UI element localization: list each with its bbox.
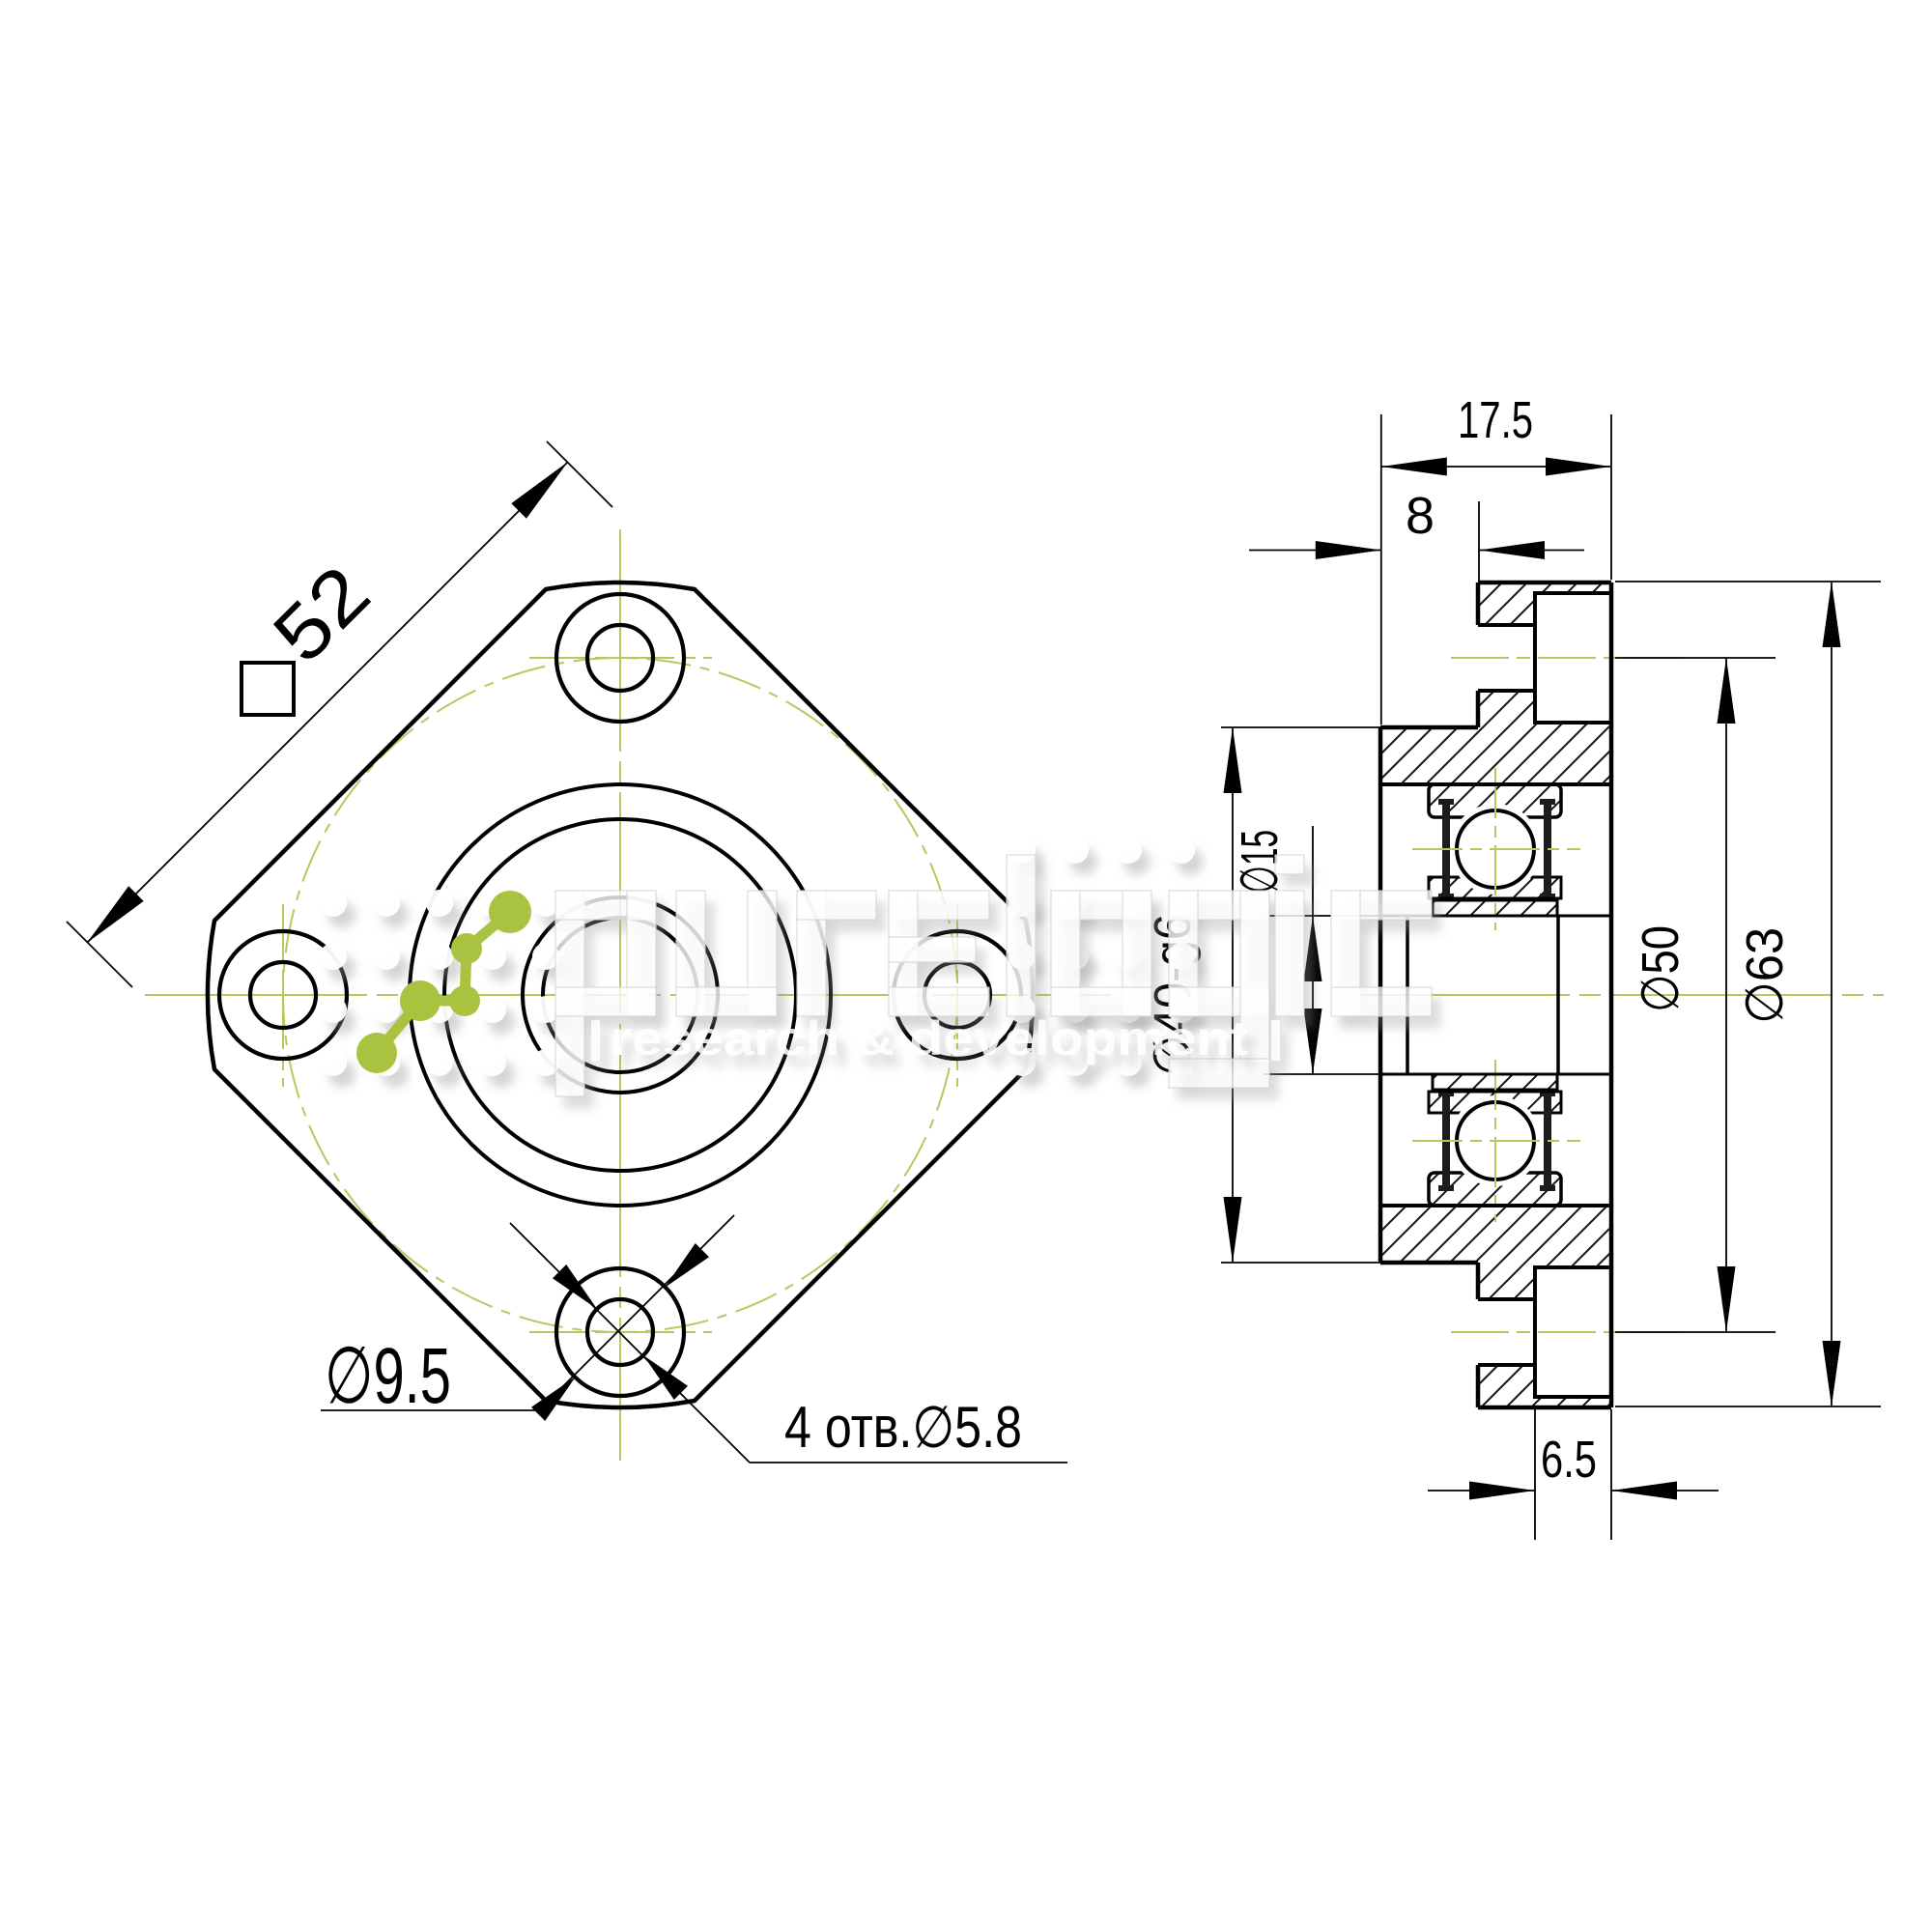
svg-text:∅50: ∅50 <box>1632 925 1690 1012</box>
svg-text:17.5: 17.5 <box>1458 391 1533 449</box>
svg-text:8: 8 <box>1406 487 1435 545</box>
svg-text:6.5: 6.5 <box>1541 1431 1597 1489</box>
svg-text:∅9.5: ∅9.5 <box>325 1332 451 1420</box>
svg-text:research & development: research & development <box>611 1011 1248 1065</box>
svg-text:∅63: ∅63 <box>1736 927 1794 1024</box>
svg-text:4 отв.∅5.8: 4 отв.∅5.8 <box>784 1395 1022 1460</box>
